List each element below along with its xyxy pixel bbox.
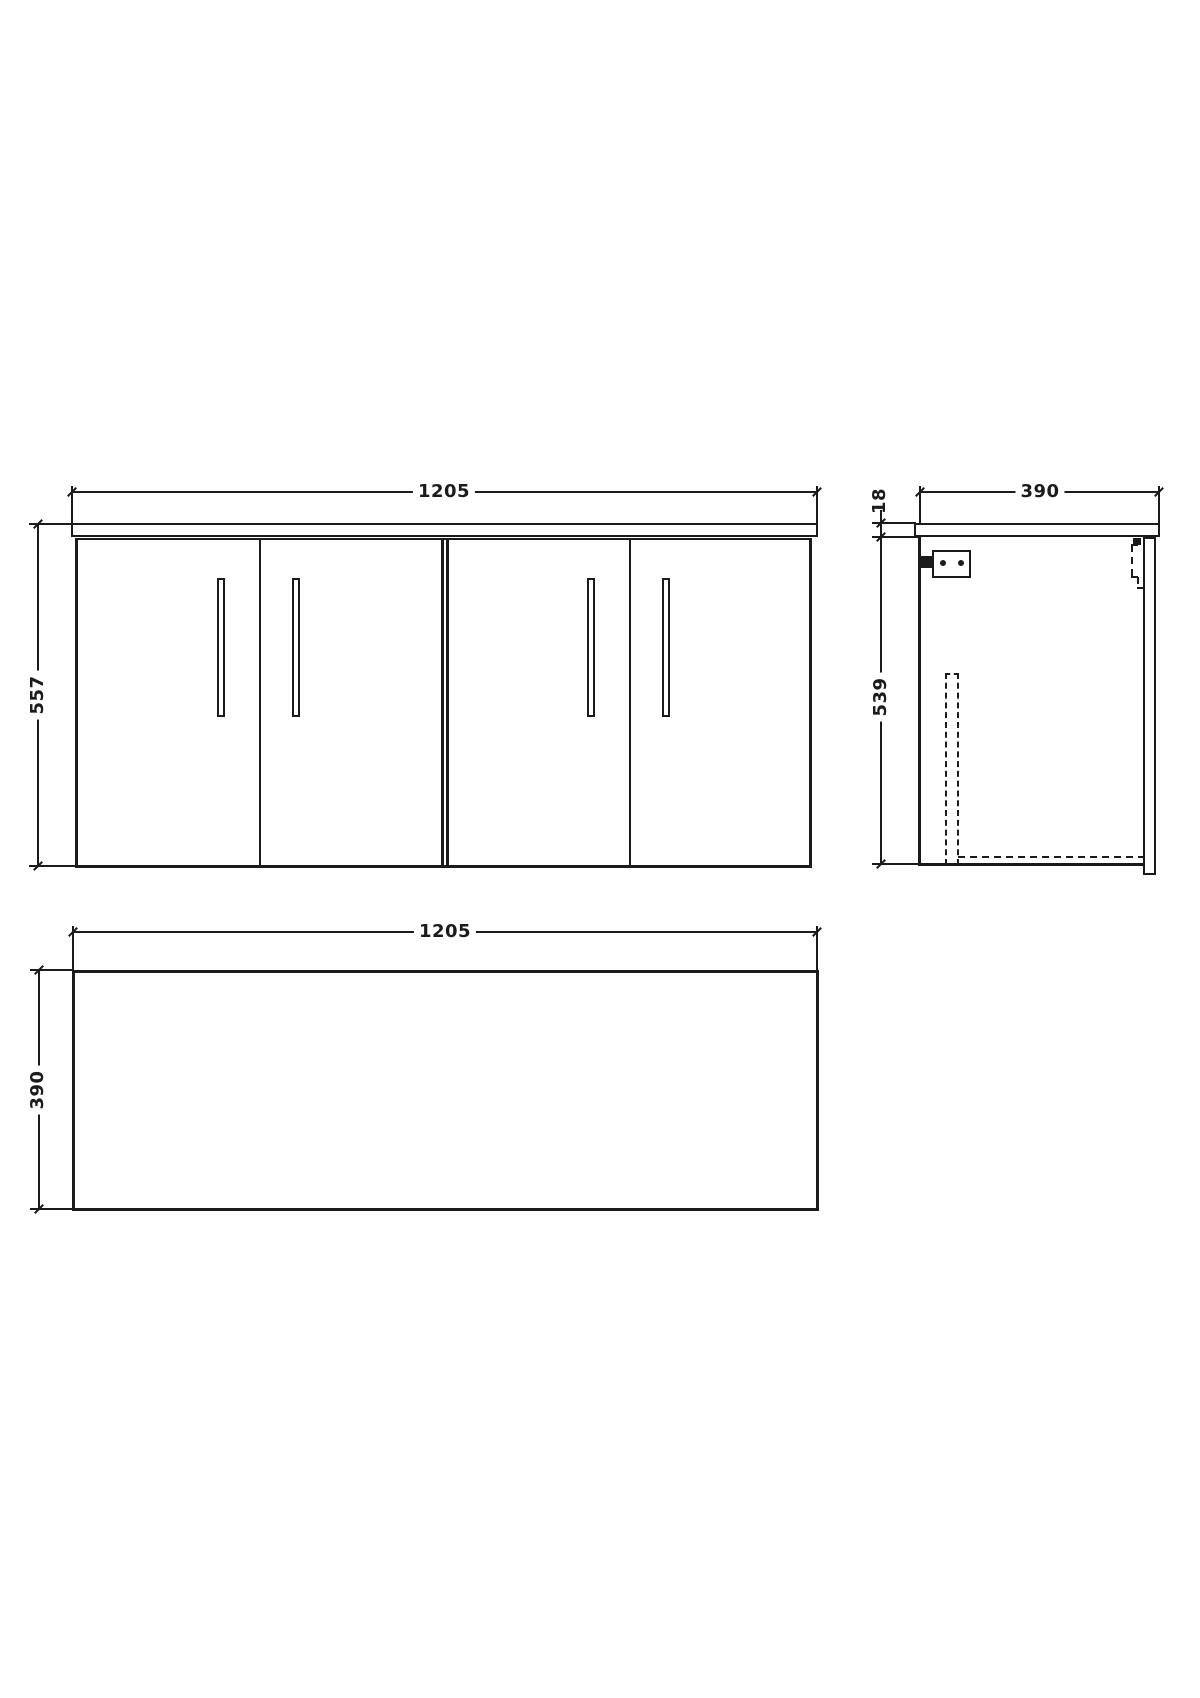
plan-depth-label: 390 <box>28 1065 48 1114</box>
technical-drawing: 1205 557 390 <box>0 0 1200 1698</box>
plan-view: 1205 390 <box>0 0 1200 1698</box>
plan-worktop-outline <box>72 970 819 1211</box>
plan-width-label: 1205 <box>414 922 476 942</box>
